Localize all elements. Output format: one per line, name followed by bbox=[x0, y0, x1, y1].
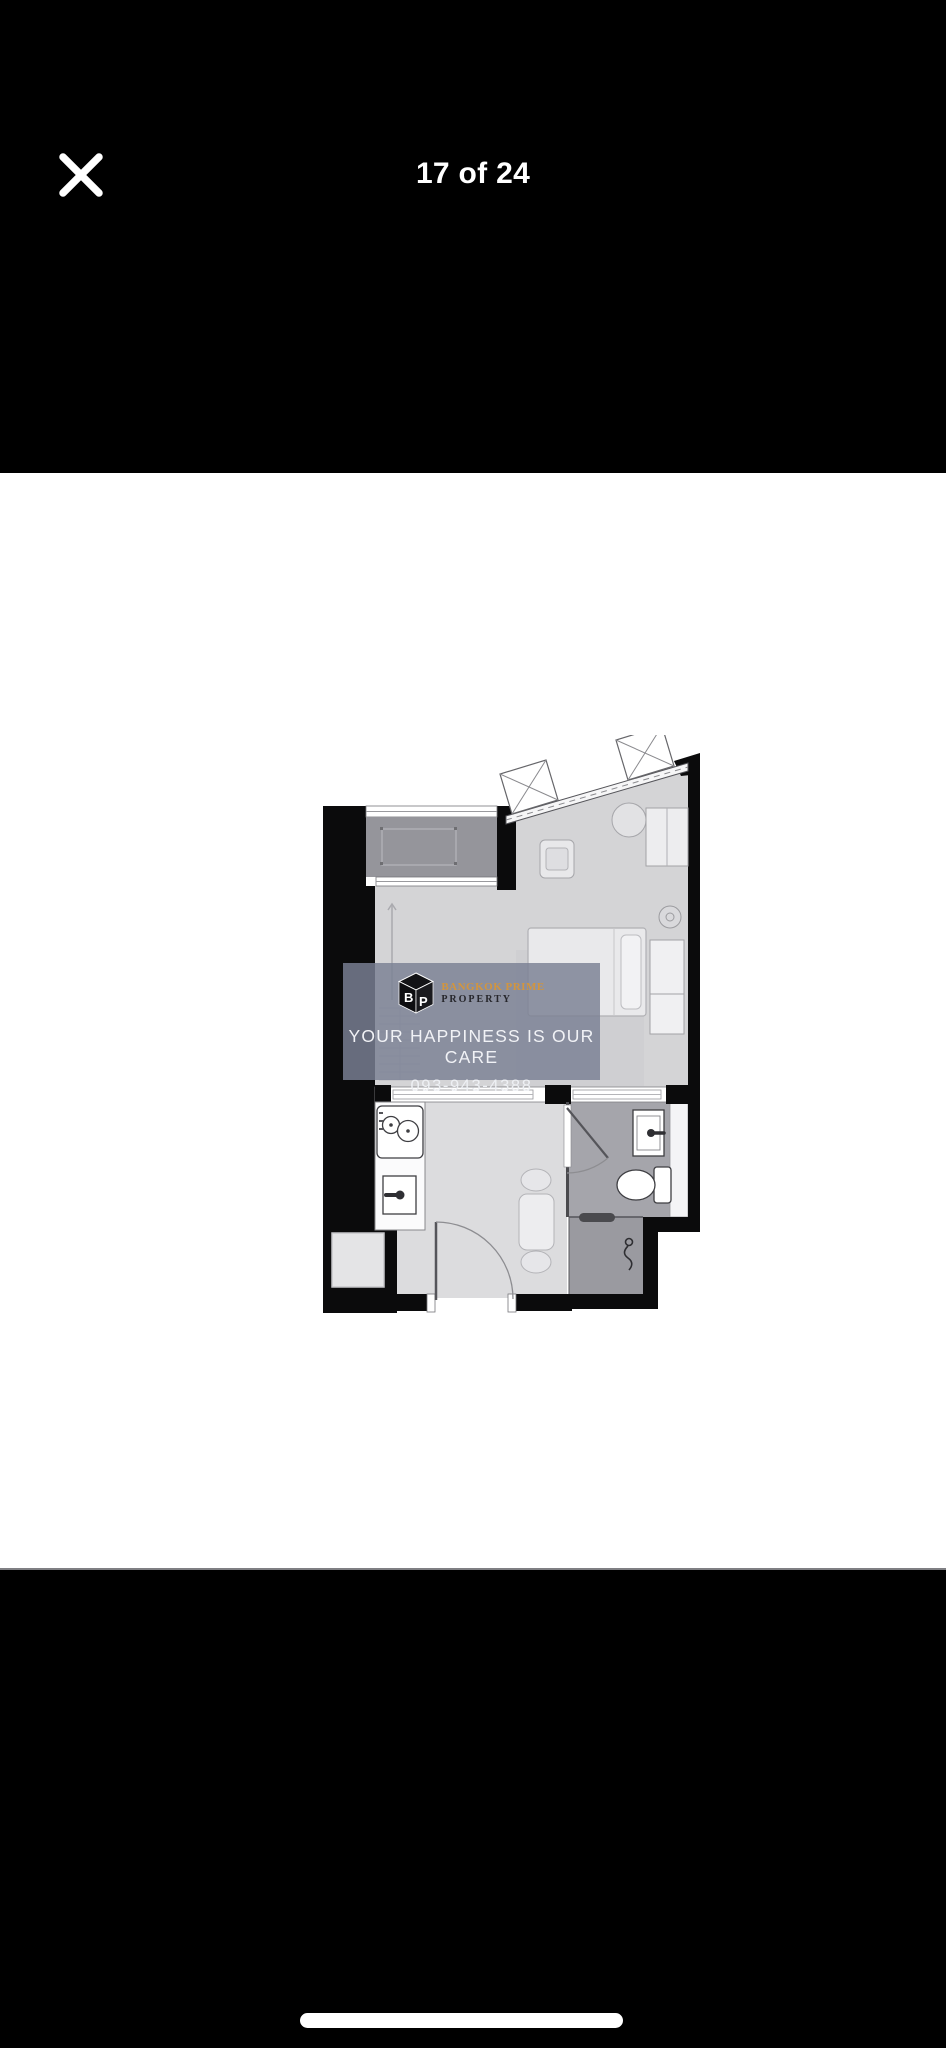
viewer-bottom-bar bbox=[0, 1568, 946, 2048]
stove-icon bbox=[377, 1106, 423, 1158]
viewer-top-bar: 17 of 24 bbox=[0, 0, 946, 473]
watermark-overlay: B P BANGKOK PRIME PROPERTY YOUR HAPPINES… bbox=[343, 963, 600, 1080]
home-indicator[interactable] bbox=[300, 2013, 623, 2028]
kitchen-sink-icon bbox=[383, 1176, 416, 1214]
watermark-phone: 093-943-4388 bbox=[411, 1077, 533, 1096]
photo-viewer-screen: 17 of 24 bbox=[0, 0, 946, 2048]
photo-viewport[interactable]: B P BANGKOK PRIME PROPERTY YOUR HAPPINES… bbox=[0, 473, 946, 1568]
brand-name: BANGKOK PRIME bbox=[441, 981, 544, 993]
photo-counter: 17 of 24 bbox=[0, 157, 946, 191]
svg-text:P: P bbox=[419, 994, 428, 1009]
brand-logo-row: B P BANGKOK PRIME PROPERTY bbox=[398, 972, 544, 1014]
svg-text:B: B bbox=[404, 990, 413, 1005]
watermark-tagline: YOUR HAPPINESS IS OUR CARE bbox=[343, 1026, 600, 1068]
brand-logo-cube-icon: B P bbox=[398, 972, 434, 1014]
ledge bbox=[332, 1233, 384, 1287]
balcony bbox=[366, 806, 497, 886]
towel-bar bbox=[579, 1213, 615, 1222]
bathroom-sink-icon bbox=[633, 1110, 664, 1156]
toilet-icon bbox=[617, 1167, 671, 1203]
brand-suffix: PROPERTY bbox=[441, 994, 544, 1005]
kitchen bbox=[375, 1102, 425, 1230]
